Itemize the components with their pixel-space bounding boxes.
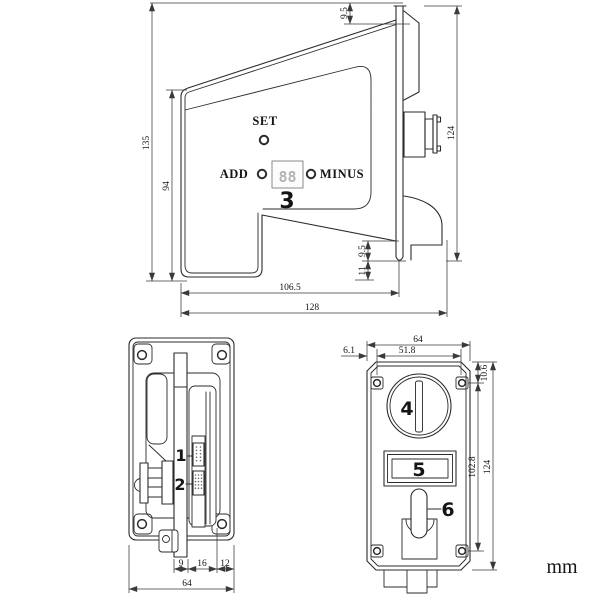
- dim-front-height: 124: [483, 460, 493, 475]
- connector-1: [193, 443, 204, 466]
- dim-hole-span-v: 102.8: [468, 456, 478, 478]
- display-digits: 88: [278, 168, 296, 186]
- front-view: 4 5 6: [367, 362, 470, 593]
- coin-return-lever: [402, 489, 437, 559]
- callout-5: 5: [412, 459, 425, 481]
- dim-top-offset: 9.5: [340, 7, 350, 19]
- drawing-svg: SET ADD 88 MINUS 3 135 94 9.5 124 9.: [0, 0, 600, 600]
- callout-4: 4: [400, 398, 413, 420]
- dim-edge-offset: 6.1: [343, 346, 355, 356]
- rear-view: 1 2: [129, 338, 234, 557]
- dim-total-height: 135: [142, 136, 152, 151]
- coin-slot: [416, 381, 423, 432]
- dim-flange-offset: 9.5: [358, 245, 368, 257]
- rear-lobe-chamfer: [149, 445, 166, 461]
- bottom-tab-narrow: [407, 570, 427, 593]
- side-view-dimensions: 135 94 9.5 124 9.5 11 106.5 128: [142, 3, 462, 317]
- callout-3: 3: [279, 189, 294, 214]
- minus-label: MINUS: [320, 167, 364, 181]
- dim-rear-seg2: 16: [197, 559, 207, 569]
- technical-drawing: SET ADD 88 MINUS 3 135 94 9.5 124 9.: [0, 0, 600, 600]
- mount-bracket-side: [404, 196, 442, 260]
- unit-label: mm: [546, 556, 578, 578]
- body-outline: [181, 20, 396, 277]
- dim-bottom-offset: 11: [358, 266, 368, 275]
- body-inner-wall: [185, 25, 396, 274]
- add-button: [258, 170, 266, 178]
- rear-bottom-latch: [159, 530, 178, 552]
- dim-rear-width: 64: [182, 579, 192, 589]
- dim-total-depth: 128: [305, 303, 320, 313]
- callout-6: 6: [441, 499, 454, 521]
- callout-1: 1: [175, 446, 186, 465]
- minus-button: [307, 170, 315, 178]
- dim-rear-seg1: 9: [179, 559, 184, 569]
- dim-hole-top: 10.6: [480, 364, 490, 381]
- dim-hole-span-h: 51.8: [399, 346, 416, 356]
- set-button: [260, 136, 268, 144]
- callout-2: 2: [174, 475, 185, 494]
- dim-plate-height: 124: [447, 126, 457, 141]
- rear-side-lobe: [147, 374, 167, 444]
- dim-body-depth: 106.5: [279, 283, 301, 293]
- dim-rear-seg3: 12: [220, 559, 230, 569]
- dim-front-width: 64: [413, 335, 423, 345]
- dim-body-height: 94: [162, 181, 172, 191]
- add-label: ADD: [220, 167, 249, 181]
- return-button-side: [404, 112, 441, 157]
- coin-bezel-outer: [387, 374, 451, 438]
- side-view: SET ADD 88 MINUS 3: [181, 6, 442, 277]
- return-shaft-rear: [135, 461, 174, 504]
- set-label: SET: [252, 114, 277, 128]
- coin-bezel-inner: [390, 377, 448, 435]
